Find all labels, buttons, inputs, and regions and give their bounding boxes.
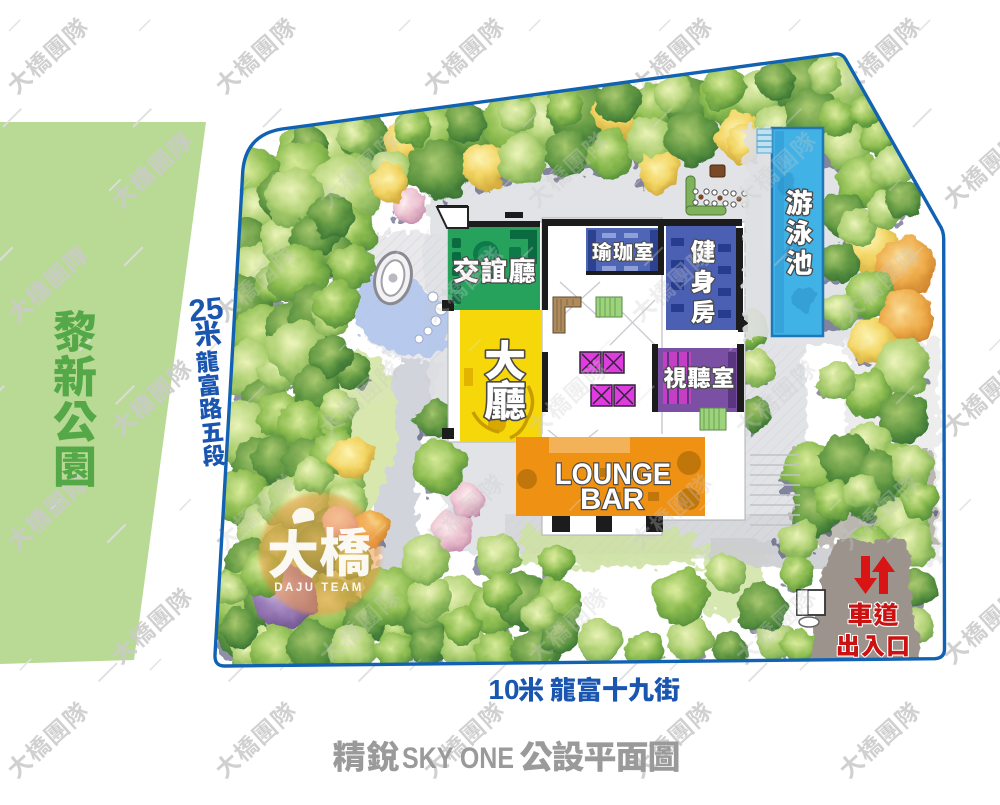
svg-text:BAR: BAR [580,483,644,516]
svg-text:SKY ONE: SKY ONE [402,742,514,775]
svg-text:10: 10 [488,674,519,705]
svg-text:DAJU TEAM: DAJU TEAM [274,582,364,594]
